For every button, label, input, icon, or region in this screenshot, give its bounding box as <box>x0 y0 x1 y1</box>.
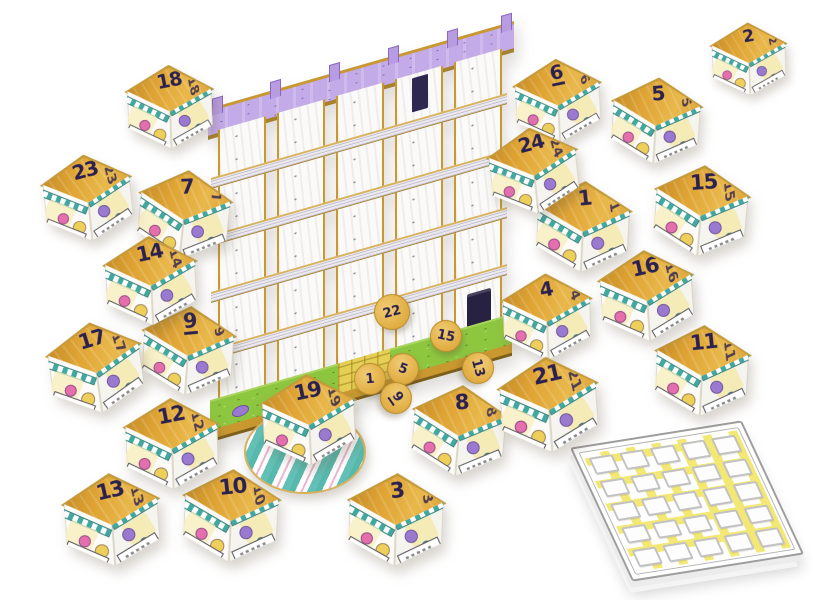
notepad-grid-cell <box>693 537 724 557</box>
box-number: 7 <box>180 176 194 198</box>
box-number-side: 19 <box>324 383 342 411</box>
notepad-grid-cell <box>660 468 691 488</box>
box-number: 8 <box>454 391 469 414</box>
box-number-side: 14 <box>166 244 184 272</box>
roof-fin <box>388 45 399 65</box>
notepad-grid-cell <box>641 496 672 516</box>
notepad-grid-cell <box>724 532 755 552</box>
notepad-grid-cell <box>680 440 711 460</box>
notepad-grid-cell <box>651 519 682 539</box>
notepad-grid-cell <box>662 542 693 562</box>
notepad-grid-cell <box>650 444 681 464</box>
box-number: 3 <box>389 478 406 502</box>
box-number: 2 <box>741 26 755 45</box>
notepad-grid-cell <box>702 486 733 506</box>
token-number: 15 <box>436 327 457 345</box>
advent-box-16: 16 16 <box>598 250 696 344</box>
advent-box-5: 5 5 <box>609 77 702 166</box>
notepad-grid-cell <box>630 472 661 492</box>
score-notepad <box>570 420 804 581</box>
box-number: 4 <box>538 278 555 301</box>
box-number-side: 12 <box>187 407 205 435</box>
token-number: 1 <box>365 371 375 387</box>
building-tower-2 <box>277 99 325 381</box>
notepad-grid-cell <box>691 463 722 483</box>
advent-box-3: 3 3 <box>348 475 445 568</box>
roof-fin <box>212 96 223 116</box>
advent-box-21: 21 21 <box>498 357 601 456</box>
token-number: 22 <box>381 302 402 321</box>
box-number-side: 18 <box>184 73 201 99</box>
roof-fin <box>329 62 340 82</box>
box-number: 6 <box>548 63 565 86</box>
advent-box-17: 17 17 <box>44 319 147 419</box>
scene-canvas: 1 1 2 2 <box>0 0 813 600</box>
advent-box-13: 13 13 <box>62 473 162 569</box>
box-number: 5 <box>651 83 666 105</box>
notepad-grid-cell <box>682 514 713 534</box>
box-number-side: 21 <box>564 365 583 395</box>
advent-box-14: 14 14 <box>104 237 199 328</box>
notepad-grid-cell <box>713 509 744 529</box>
notepad-grid <box>588 435 785 568</box>
advent-box-23: 23 23 <box>40 153 136 245</box>
token-number: 13 <box>468 357 487 378</box>
roof-fin <box>447 28 458 48</box>
roof-fin <box>501 13 512 33</box>
base-purple-dot <box>232 403 249 419</box>
advent-box-24: 24 24 <box>486 126 582 218</box>
advent-box-15: 15 15 <box>651 164 750 260</box>
token-number: 9 <box>388 390 404 405</box>
token-number: 5 <box>396 360 410 377</box>
advent-box-8: 8 8 <box>409 384 508 480</box>
advent-box-4: 4 4 <box>502 275 592 362</box>
advent-box-2: 2 2 <box>711 24 787 97</box>
notepad-grid-cell <box>619 449 650 469</box>
dark-window <box>412 74 428 113</box>
roof-fin <box>270 79 281 99</box>
advent-box-18: 18 18 <box>126 66 213 150</box>
box-number-side: 13 <box>127 481 146 510</box>
notepad-grid-cell <box>671 491 702 511</box>
box-number-side: 16 <box>661 258 680 286</box>
advent-box-19: 19 19 <box>261 375 357 468</box>
